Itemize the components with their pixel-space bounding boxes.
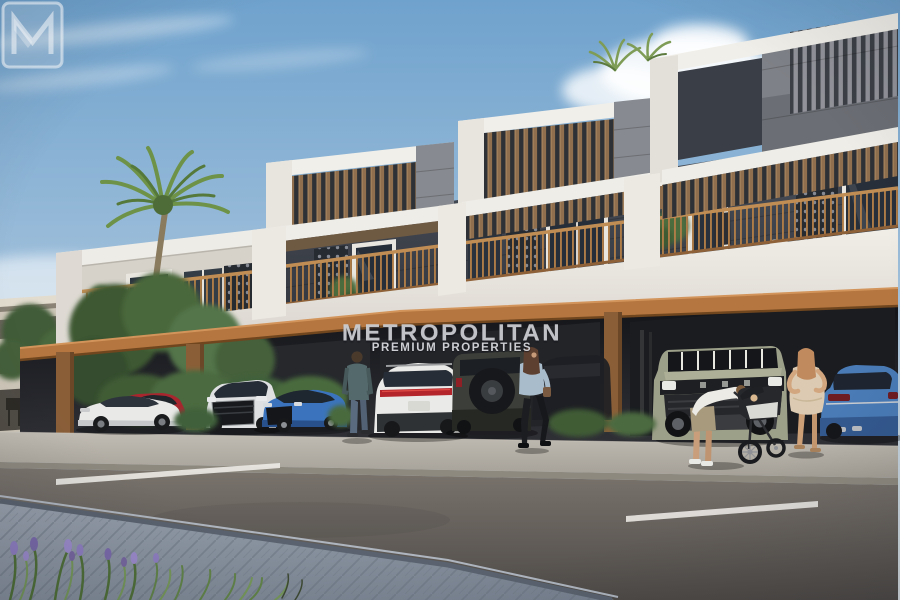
scene-canvas (0, 0, 900, 600)
vignette (0, 0, 900, 600)
render-image: METROPOLITAN PREMIUM PROPERTIES (0, 0, 900, 600)
